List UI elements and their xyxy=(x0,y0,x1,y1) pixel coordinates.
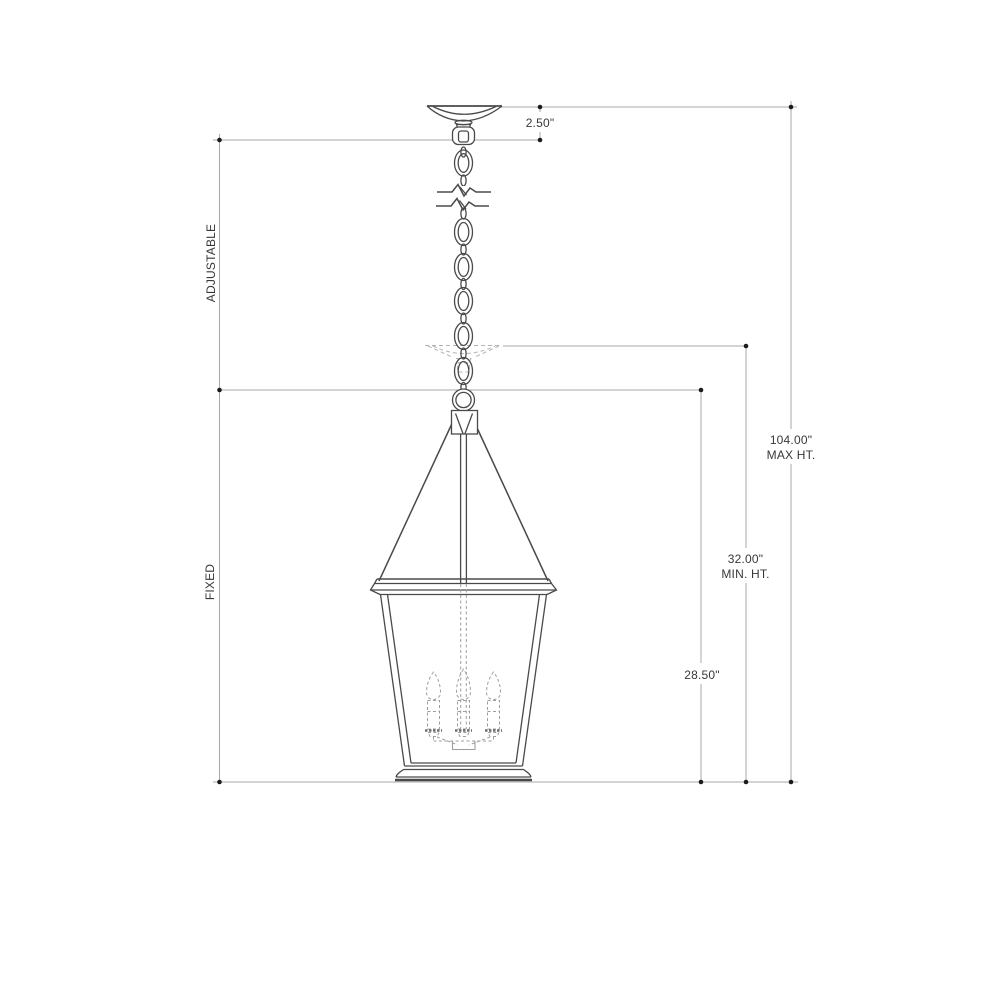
hanging-chain xyxy=(436,147,491,393)
fixed-section-label: FIXED xyxy=(203,564,217,600)
support-arm-right xyxy=(472,417,548,581)
support-arm-left xyxy=(379,417,455,581)
canopy-drop-dimension-label: 2.50" xyxy=(526,116,555,130)
lantern-sides xyxy=(381,595,547,767)
max-height-caption-label: MAX HT. xyxy=(767,448,816,462)
min-height-caption-label: MIN. HT. xyxy=(721,567,769,581)
adjustable-section-label: ADJUSTABLE xyxy=(204,224,218,302)
lantern-base xyxy=(395,766,532,780)
dimension-labels: 2.50" ADJUSTABLE FIXED 104.00" MAX HT. 3… xyxy=(203,112,821,684)
lantern-top-rim xyxy=(371,579,557,595)
min-height-value-label: 32.00" xyxy=(728,552,764,566)
center-bracket xyxy=(453,741,476,750)
fixture-height-dimension-label: 28.50" xyxy=(684,668,720,682)
fixture-suspension xyxy=(379,389,548,583)
dimension-drawing-canvas: 2.50" ADJUSTABLE FIXED 104.00" MAX HT. 3… xyxy=(0,0,1000,1000)
candelabra-cluster xyxy=(425,584,502,750)
candle-right xyxy=(485,672,502,741)
ceiling-canopy xyxy=(427,106,502,145)
candle-left xyxy=(425,672,442,741)
center-stem-hidden xyxy=(461,584,467,729)
max-height-value-label: 104.00" xyxy=(770,433,812,447)
chain-break-symbol xyxy=(436,185,491,211)
candle-center xyxy=(455,669,472,737)
center-stem xyxy=(461,434,467,583)
pendant-light-dimension-diagram: 2.50" ADJUSTABLE FIXED 104.00" MAX HT. 3… xyxy=(0,0,1000,1000)
